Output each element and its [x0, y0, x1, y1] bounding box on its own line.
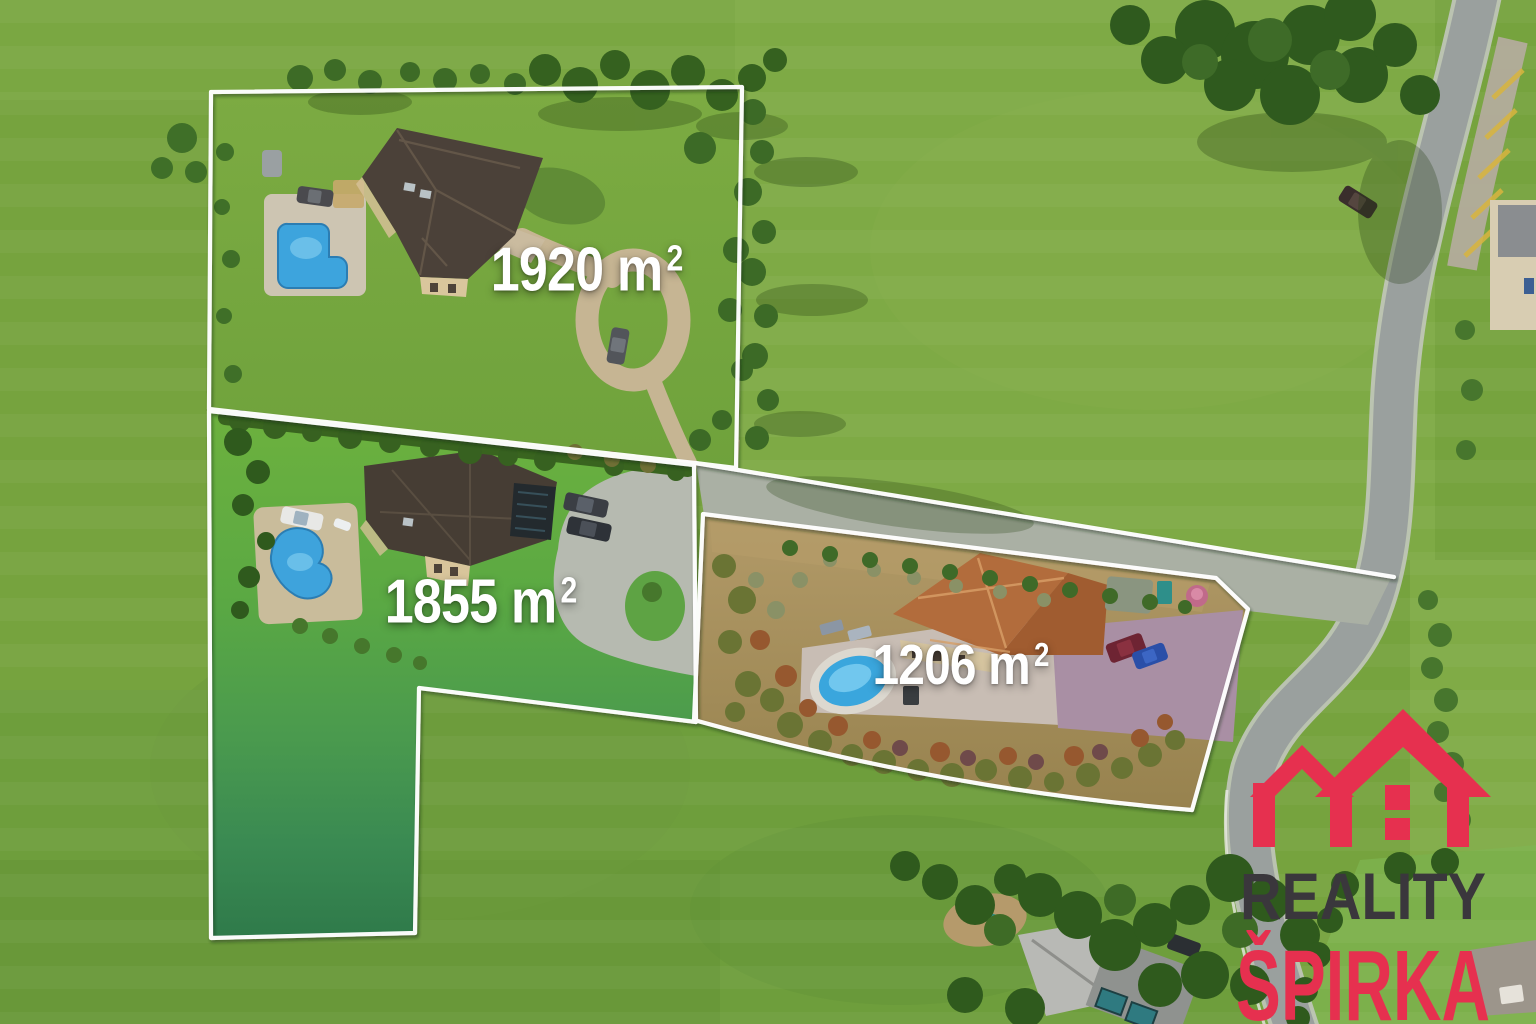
plot-area-label-1206: 1206 m2 — [872, 632, 1049, 698]
brand-name-line1: REALITY — [1240, 859, 1486, 933]
logo-house-icon — [1250, 709, 1491, 847]
brand-name-line2: ŠPIRKA — [1236, 930, 1490, 1024]
brand-watermark: REALITY ŠPIRKA — [1220, 695, 1520, 1024]
plot1-shed — [262, 150, 282, 177]
plot-area-label-1920: 1920 m2 — [491, 235, 684, 306]
plot-area-label-1855: 1855 m2 — [385, 567, 578, 638]
neighbor-house-topright — [1490, 200, 1536, 330]
aerial-scene: 1920 m2 1855 m2 1206 m2 REALITY ŠPIRKA — [0, 0, 1536, 1024]
plot2-grass-island — [625, 571, 685, 641]
